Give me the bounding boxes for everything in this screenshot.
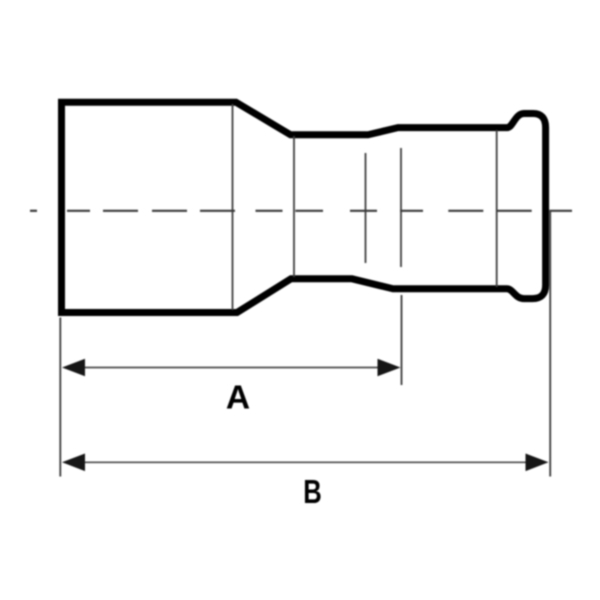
- svg-text:B: B: [303, 474, 322, 511]
- svg-text:A: A: [226, 380, 250, 417]
